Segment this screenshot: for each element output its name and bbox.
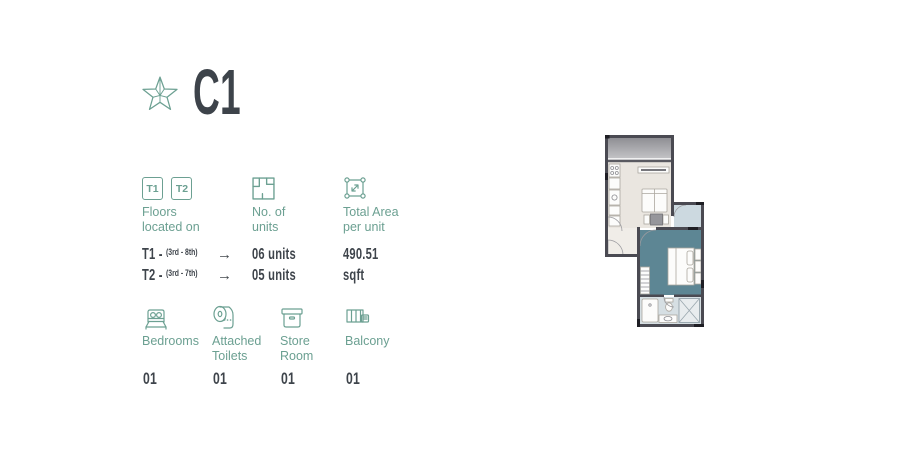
unit-detail-panel: C1 T1 T2 Floors located on No. of units … bbox=[0, 0, 900, 460]
balcony-label: Balcony bbox=[345, 334, 389, 349]
floor-plan-drawing bbox=[600, 128, 710, 333]
arrow-right-icon: → bbox=[217, 246, 232, 263]
floor-row-t1: T1 - (3rd - 8th) bbox=[142, 244, 219, 267]
tower-badges: T1 T2 bbox=[142, 177, 196, 200]
store-room-count: 01 bbox=[281, 369, 301, 389]
bedrooms-label: Bedrooms bbox=[142, 334, 199, 349]
floors-label: Floors located on bbox=[142, 205, 200, 235]
bedrooms-count: 01 bbox=[143, 369, 163, 389]
arrow-right-icon: → bbox=[217, 267, 232, 284]
area-label: Total Area per unit bbox=[343, 205, 399, 235]
attached-toilets-label: Attached Toilets bbox=[212, 334, 261, 364]
area-value: 490.51 bbox=[343, 244, 392, 265]
tower-t2-badge: T2 bbox=[171, 177, 192, 200]
units-value-t2: 05 units bbox=[252, 265, 313, 286]
balcony-count: 01 bbox=[346, 369, 366, 389]
page-title: C1 bbox=[193, 60, 275, 124]
area-unit: sqft bbox=[343, 265, 373, 286]
units-plan-icon bbox=[252, 177, 275, 205]
units-label: No. of units bbox=[252, 205, 285, 235]
balcony-icon bbox=[345, 306, 371, 335]
store-room-label: Store Room bbox=[280, 334, 313, 364]
floor-plan bbox=[600, 128, 710, 333]
attached-toilets-count: 01 bbox=[213, 369, 233, 389]
toilet-roll-icon bbox=[212, 305, 237, 337]
area-measure-icon bbox=[343, 176, 367, 205]
tower-t1-badge: T1 bbox=[142, 177, 163, 200]
bed-icon bbox=[142, 306, 170, 336]
floor-row-t2: T2 - (3rd - 7th) bbox=[142, 265, 219, 288]
store-box-icon bbox=[280, 307, 304, 334]
unit-code-text: C1 bbox=[193, 60, 241, 124]
star-icon bbox=[139, 75, 181, 117]
units-value-t1: 06 units bbox=[252, 244, 313, 265]
